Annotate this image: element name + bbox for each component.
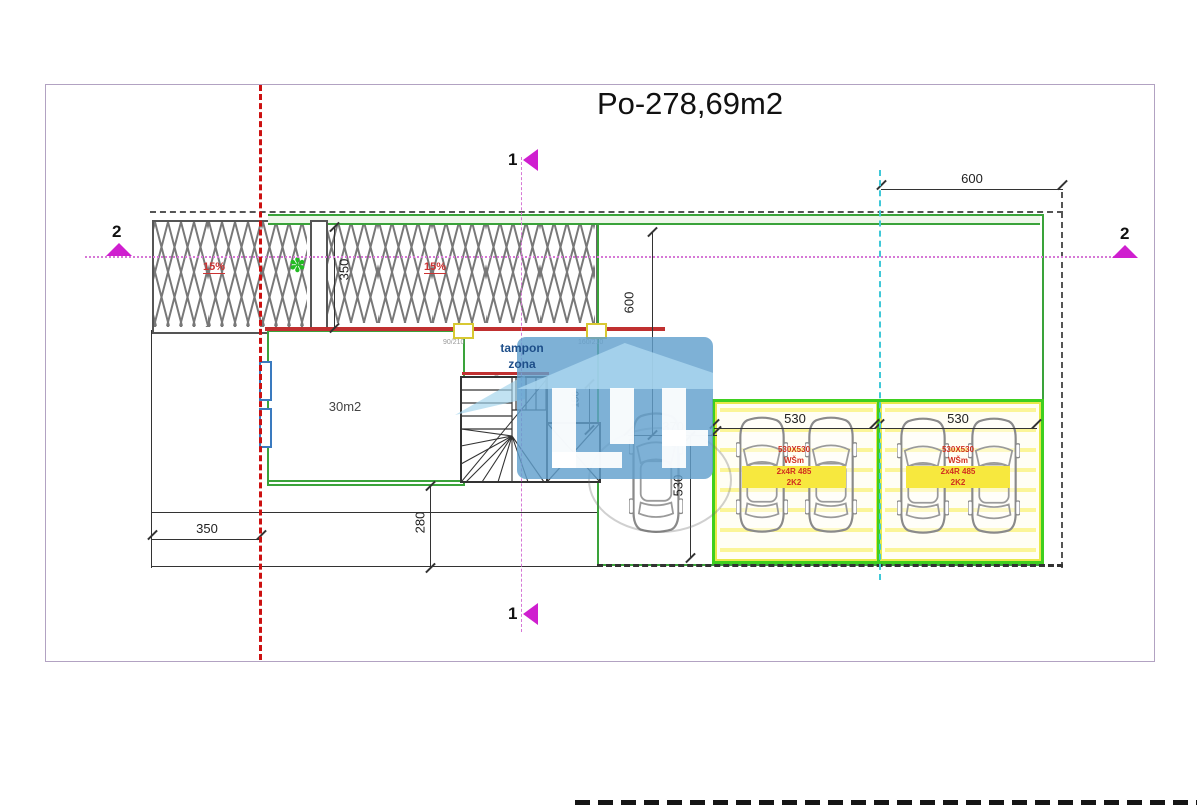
watermark-bar	[552, 452, 622, 468]
ramp-hatch	[324, 222, 595, 323]
section-marker-1-top: 1	[508, 150, 517, 170]
dim-label-350-ramp: 350	[337, 248, 352, 292]
dim-label-530-box2: 530	[918, 411, 998, 426]
plan-title: Po-278,69m2	[500, 86, 880, 122]
section-marker-1-bottom-icon	[523, 603, 538, 625]
slope-label-main: 15%	[424, 261, 446, 274]
section-marker-2-right-icon	[1112, 245, 1138, 258]
section-marker-2-left-icon	[106, 243, 132, 256]
axis-line-cyan	[879, 170, 881, 580]
parking-text-line: WŠm	[906, 455, 1010, 466]
adjacent-drawing-edge	[575, 800, 1197, 805]
section-marker-2-left: 2	[112, 222, 121, 242]
red-boundary-axis	[259, 85, 262, 660]
section-marker-2-right: 2	[1120, 224, 1129, 244]
site-line	[152, 566, 599, 567]
tampon-line2: zona	[508, 357, 535, 371]
ramp-hatch	[154, 222, 307, 327]
ramp-divider-wall	[310, 220, 328, 334]
section-line-2	[85, 256, 1135, 258]
ramp-main	[324, 222, 597, 325]
watermark-bar	[662, 430, 708, 446]
parking-text-line: 2K2	[742, 477, 846, 488]
floor-plan-page: Po-278,69m2 ✽ 15% 15% 30m2 tampon zona	[0, 0, 1200, 809]
parking-text-line: 2x4R 485	[742, 466, 846, 477]
door-size-label: 90/210	[443, 339, 464, 346]
tampon-zone-label: tampon zona	[486, 340, 558, 372]
parking-1-text: 530X530 WŠm 2x4R 485 2K2	[742, 444, 846, 488]
dim-line-350-ramp	[334, 227, 335, 328]
section-marker-1-bottom: 1	[508, 604, 517, 624]
dim-line-280	[430, 486, 431, 568]
dim-line-530-box1	[714, 428, 875, 429]
dim-label-530-box1: 530	[755, 411, 835, 426]
parking-text-line: 530X530	[906, 444, 1010, 455]
dim-line-530-box2	[879, 428, 1037, 429]
parking-text-line: 2x4R 485	[906, 466, 1010, 477]
plot-boundary-right	[1061, 192, 1063, 568]
plot-boundary-top	[150, 211, 1063, 213]
parking-text-line: WŠm	[742, 455, 846, 466]
dim-line-350-bottom	[152, 539, 262, 540]
tampon-line1: tampon	[500, 341, 543, 355]
dim-label-350-bottom: 350	[167, 521, 247, 536]
plot-boundary-bottom	[597, 564, 1063, 567]
exterior-wall-top	[268, 214, 1040, 225]
slope-label-left: 15%	[203, 261, 225, 274]
dim-label-600-mid: 600	[622, 281, 637, 325]
watermark-pillar	[662, 388, 686, 468]
section-marker-1-top-icon	[523, 149, 538, 171]
door	[453, 323, 474, 339]
site-line	[152, 512, 597, 513]
dim-line-600-top	[881, 189, 1063, 190]
dim-label-280: 280	[413, 501, 428, 545]
parking-text-line: 530X530	[742, 444, 846, 455]
dim-label-600-top: 600	[932, 171, 1012, 186]
room-area-label: 30m2	[300, 399, 390, 414]
parking-2-text: 530X530 WŠm 2x4R 485 2K2	[906, 444, 1010, 488]
parking-text-line: 2K2	[906, 477, 1010, 488]
watermark-pillar	[610, 388, 634, 444]
